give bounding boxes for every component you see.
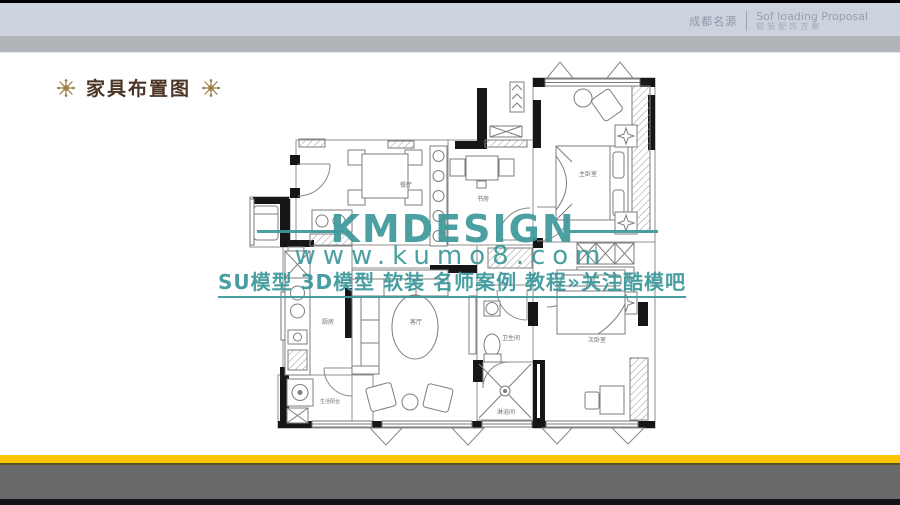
room-label-bath: 卫生间 (502, 334, 520, 342)
footer-gray-bar (0, 465, 900, 499)
room-label-utility: 生活阳台 (320, 398, 340, 405)
balcony-chaise (254, 206, 278, 240)
room-label-shower: 淋浴间 (497, 408, 515, 416)
room-label-kitchen: 厨房 (322, 318, 334, 326)
room-label-master: 主卧室 (579, 170, 597, 178)
wall-cavity (537, 364, 540, 418)
footer-accent-bar (0, 455, 900, 465)
watermark-tagline: SU模型 3D模型 软装 名师案例 教程»关注酷模吧 (218, 266, 686, 298)
utility-fixtures (287, 379, 313, 423)
bathroom-fixtures (484, 301, 501, 362)
room-label-bedroom2: 次卧室 (588, 336, 606, 344)
watermark-line-right (570, 230, 658, 233)
footer-black-strip (0, 499, 900, 505)
room-label-study: 书房 (477, 195, 489, 203)
room-label-living: 客厅 (410, 318, 422, 326)
dining-set (299, 139, 422, 205)
room-label-dining: 餐厅 (400, 181, 412, 189)
